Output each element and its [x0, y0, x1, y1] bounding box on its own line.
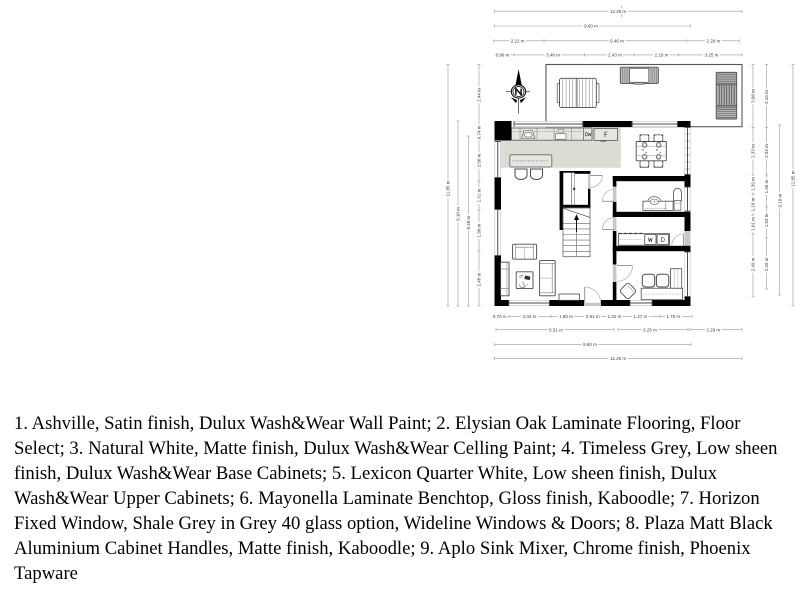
svg-text:3.25 m: 3.25 m — [643, 327, 657, 332]
svg-text:2.49 m: 2.49 m — [764, 257, 769, 271]
svg-text:2.21 m: 2.21 m — [511, 39, 525, 44]
svg-text:1.01 m: 1.01 m — [751, 217, 756, 231]
svg-text:2.33 m: 2.33 m — [751, 144, 756, 158]
svg-text:9.60 m: 9.60 m — [583, 342, 597, 347]
svg-text:1.32 m: 1.32 m — [608, 314, 622, 319]
svg-text:12.29 m: 12.29 m — [610, 9, 627, 14]
svg-text:0.70 m: 0.70 m — [493, 314, 507, 319]
svg-text:12.29 m: 12.29 m — [610, 356, 627, 361]
svg-text:1.10 m: 1.10 m — [751, 197, 756, 211]
svg-text:1.27 m: 1.27 m — [634, 314, 648, 319]
svg-text:9.10 m: 9.10 m — [456, 207, 461, 221]
svg-text:2.49 m: 2.49 m — [751, 257, 756, 271]
svg-text:1.53 m: 1.53 m — [764, 213, 769, 227]
svg-text:1.90 m: 1.90 m — [477, 223, 482, 237]
svg-text:3.48 m: 3.48 m — [546, 53, 560, 58]
svg-text:1.80 m: 1.80 m — [559, 314, 573, 319]
svg-text:2.44 m: 2.44 m — [477, 88, 482, 102]
svg-text:3.25 m: 3.25 m — [705, 53, 719, 58]
svg-text:2.04 m: 2.04 m — [523, 314, 537, 319]
svg-text:2.19 m: 2.19 m — [655, 53, 669, 58]
svg-text:2.33 m: 2.33 m — [764, 144, 769, 158]
svg-text:2.44 m: 2.44 m — [764, 90, 769, 104]
svg-text:3.08 m: 3.08 m — [751, 89, 756, 103]
svg-text:2.48 m: 2.48 m — [477, 272, 482, 286]
svg-text:0.96 m: 0.96 m — [496, 53, 510, 58]
svg-text:9.10 m: 9.10 m — [777, 193, 782, 207]
svg-text:11.85 m: 11.85 m — [791, 170, 796, 186]
svg-text:2.29 m: 2.29 m — [707, 39, 721, 44]
svg-text:1.75 m: 1.75 m — [666, 314, 680, 319]
svg-text:0.74 m: 0.74 m — [477, 125, 482, 139]
svg-text:8.48 m: 8.48 m — [466, 215, 471, 229]
svg-text:2.43 m: 2.43 m — [608, 53, 622, 58]
svg-text:1.91 m: 1.91 m — [477, 188, 482, 202]
svg-text:2.29 m: 2.29 m — [706, 327, 720, 332]
svg-text:9.60 m: 9.60 m — [584, 24, 598, 29]
svg-text:1.39 m: 1.39 m — [751, 177, 756, 191]
svg-text:0.91 m: 0.91 m — [586, 314, 600, 319]
svg-text:5.51 m: 5.51 m — [549, 327, 563, 332]
svg-text:11.85 m: 11.85 m — [446, 180, 451, 196]
svg-text:6.46 m: 6.46 m — [610, 39, 624, 44]
svg-text:1.56 m: 1.56 m — [764, 179, 769, 193]
svg-text:2.00 m: 2.00 m — [477, 153, 482, 167]
